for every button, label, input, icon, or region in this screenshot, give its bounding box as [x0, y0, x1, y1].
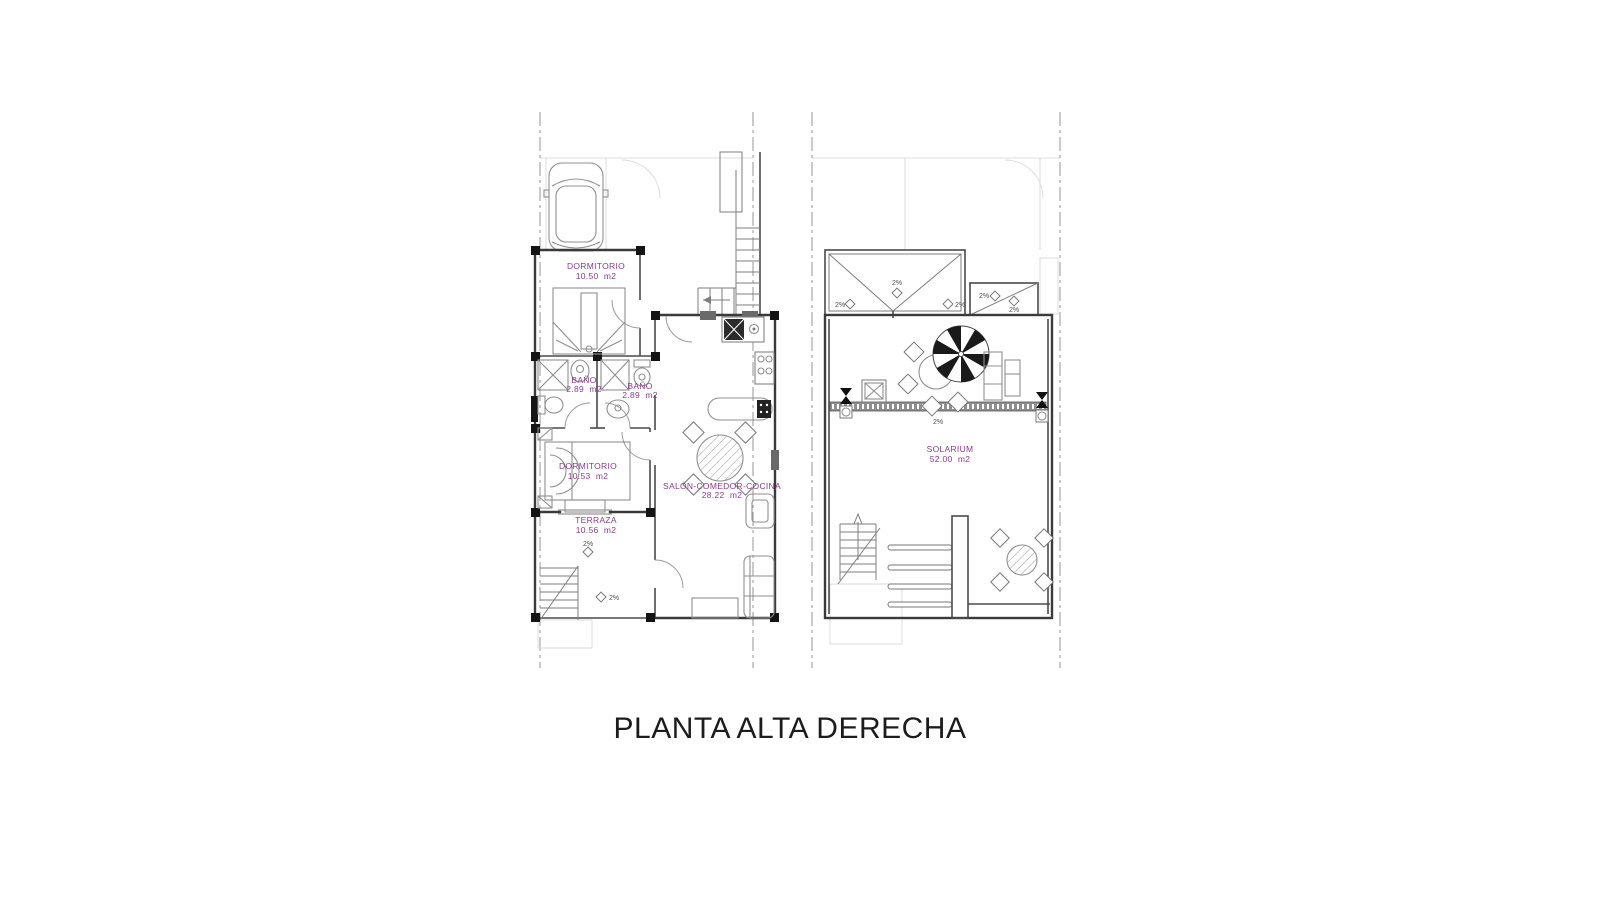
bed-icon [553, 288, 625, 354]
room-area-dormitorio-1: 10.50 m2 [576, 271, 617, 281]
roof-slopes: 2% 2% 2% 2% 2% [825, 250, 1038, 318]
slope-label: 2% [892, 280, 902, 287]
blueprint-canvas: 2% 2% DORMITORIO 10.50 m2 BAÑO 2.89 m2 B… [0, 0, 1600, 900]
stairs-icon [698, 152, 760, 315]
skylight-icon [862, 380, 886, 402]
parasol-icon [933, 326, 989, 382]
slope-label: 2% [979, 293, 989, 300]
room-name-solarium: SOLARIUM [927, 444, 974, 454]
car-icon [544, 163, 608, 251]
room-area-bano-2: 2.89 m2 [622, 390, 657, 400]
floor-plan: 2% 2% DORMITORIO 10.50 m2 BAÑO 2.89 m2 B… [531, 152, 781, 648]
ghost-lines [538, 158, 753, 648]
sofa-icon [692, 556, 774, 618]
room-area-salon: 28.22 m2 [702, 490, 743, 500]
slope-label: 2% [933, 419, 943, 426]
sink-icon [607, 400, 629, 418]
beam-anchor-icon [1036, 392, 1048, 422]
terrace-stairs-icon [540, 566, 578, 620]
slope-marker: 2% 2% [583, 541, 619, 602]
room-name-dormitorio-1: DORMITORIO [567, 261, 625, 271]
room-area-dormitorio-2: 10.53 m2 [568, 471, 609, 481]
room-area-solarium: 52.00 m2 [930, 454, 971, 464]
hob-icon [755, 352, 774, 384]
slope-label: 2% [1009, 307, 1019, 314]
toilet-icon [538, 396, 563, 414]
shower-icon [538, 360, 568, 390]
solarium-stairs-icon [838, 514, 880, 584]
kitchen-island-icon [708, 398, 772, 420]
slope-label: 2% [609, 595, 619, 602]
patio-table-icon [991, 529, 1053, 591]
armchair-icon [746, 494, 774, 528]
slope-label: 2% [835, 302, 845, 309]
slope-label: 2% [955, 302, 965, 309]
roof-plan: 2% 2% 2% 2% 2% 2% [812, 158, 1060, 644]
plan-title: PLANTA ALTA DERECHA [614, 712, 967, 745]
room-area-bano-1: 2.89 m2 [566, 384, 601, 394]
kitchen-sink-icon [722, 317, 764, 342]
room-name-terraza: TERRAZA [575, 515, 617, 525]
sun-lounger-icon [984, 352, 1020, 400]
floorplan-drawing: 2% 2% DORMITORIO 10.50 m2 BAÑO 2.89 m2 B… [0, 0, 1600, 900]
shower-icon [601, 360, 629, 390]
room-name-dormitorio-2: DORMITORIO [559, 461, 617, 471]
room-area-terraza: 10.56 m2 [576, 525, 617, 535]
beam-anchor-icon [840, 388, 852, 418]
